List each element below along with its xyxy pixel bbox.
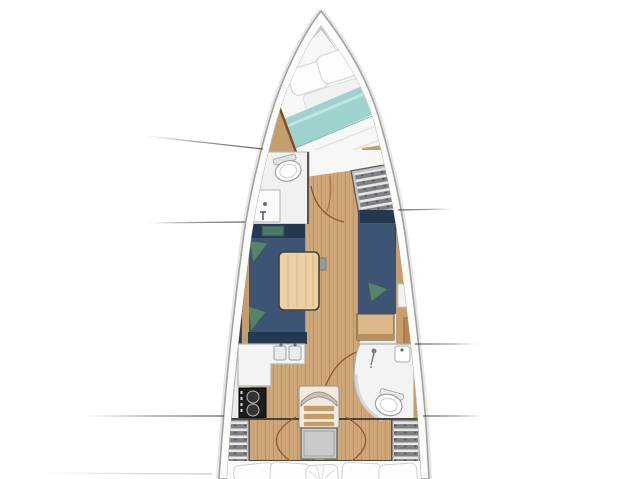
- faucet-icon: [263, 202, 267, 206]
- berth-pillow: [269, 462, 311, 479]
- salon-table: [279, 252, 326, 310]
- sink-icon: [274, 346, 286, 360]
- starboard-settee: [358, 210, 401, 314]
- berth-pillow: [378, 463, 417, 479]
- nav-station: [357, 314, 394, 340]
- sink-icon: [289, 346, 301, 360]
- companionway-stairs: [299, 386, 339, 428]
- teal-tray: [262, 226, 284, 236]
- berth-pillow: [341, 462, 382, 479]
- floor-plan-figure: [0, 0, 640, 479]
- callout-line: [46, 473, 212, 474]
- engine-box: [301, 428, 337, 465]
- callout-line: [146, 136, 263, 149]
- callout-line: [147, 222, 245, 223]
- aft-sink-icon: [395, 346, 410, 362]
- stove-icon: [239, 388, 266, 418]
- aft-berth: [227, 461, 421, 479]
- floor-plan-canvas: [0, 0, 640, 479]
- port-forward-wood-trim: [242, 86, 257, 160]
- callout-line: [398, 209, 452, 210]
